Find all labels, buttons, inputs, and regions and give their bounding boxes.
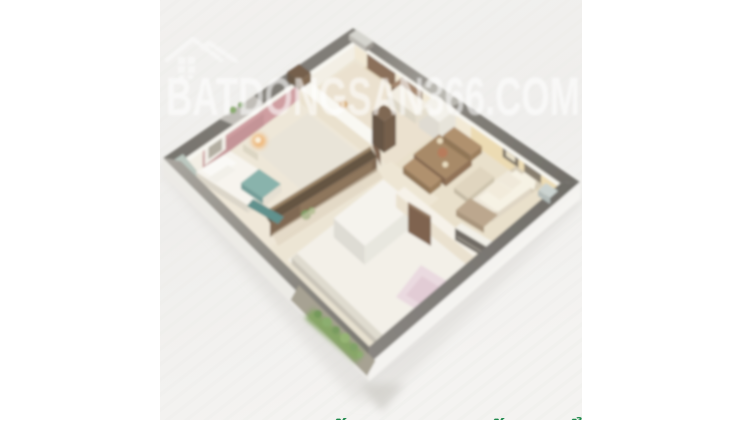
svg-text:BATDONGSAN366.COM: BATDONGSAN366.COM <box>166 67 580 127</box>
svg-text:ổ: ổ <box>565 415 583 420</box>
svg-text:ến: ến <box>488 415 523 420</box>
svg-text:ết: ết <box>330 415 357 420</box>
